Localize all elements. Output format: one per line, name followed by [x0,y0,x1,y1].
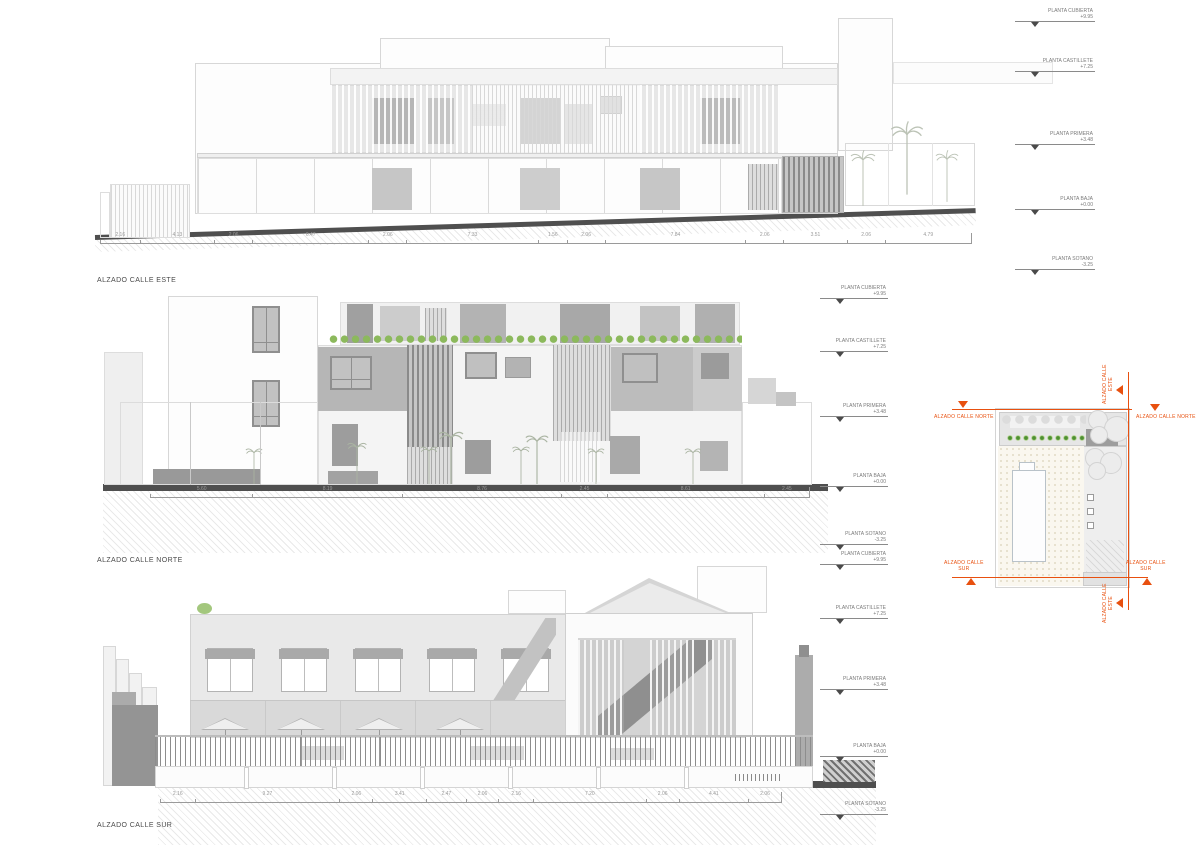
siteplan-label-south-left: ALZADO CALLE SUR [944,560,984,572]
palm-tree-icon [524,432,550,484]
level-triangle-icon [836,487,844,492]
dimension-segment: 2.16 [160,799,195,803]
siteplan-room-sq [1087,494,1094,501]
level-marker: PLANTA CUBIERTA+9.95 [820,285,888,304]
dimension-value: 2.16 [161,791,195,797]
level-line [820,298,888,299]
fence-pier [508,767,513,789]
facade-panel [465,440,491,474]
window-mullion [452,659,453,691]
dimension-value: 2.45 [562,486,606,492]
level-value: +9.95 [820,291,888,297]
facade-window [701,353,729,379]
facade-window [622,353,658,383]
dimension-segment: 2.06 [646,799,679,803]
dimension-value: 2.06 [848,232,885,238]
dimension-value: 7.20 [534,791,646,797]
dimension-segment: 6.47 [252,240,368,244]
dimension-segment: 2.06 [339,799,372,803]
dimension-segment: 2.45 [764,494,809,498]
south-window [281,648,327,692]
dimension-segment: 2.06 [567,240,605,244]
parasol-canopy-inner [279,719,323,729]
level-line [1015,71,1095,72]
level-line [820,618,888,619]
dimension-segment: 4.79 [885,240,971,244]
siteplan-label-north-right: ALZADO CALLE NORTE [1136,414,1196,420]
dimension-segment: 5.60 [150,494,252,498]
window-awning [353,649,403,659]
level-line [1015,144,1095,145]
level-line [820,416,888,417]
south-fence-base [155,766,813,788]
level-marker: PLANTA BAJA+0.00 [820,473,888,492]
palm-tree-icon [418,444,440,484]
section-arrow-icon [1116,598,1123,608]
dimension-segment: 2.06 [748,799,781,803]
level-triangle-icon [836,565,844,570]
level-value: +7.25 [820,611,888,617]
dimension-value: 2.45 [765,486,809,492]
level-marker: PLANTA PRIMERA+3.48 [1015,131,1095,150]
dimension-value: 2.06 [369,232,406,238]
louver-screen [748,164,778,210]
section-arrow-icon [1150,404,1160,411]
elevation-sheet: 2.164.132.066.472.067.331.562.067.842.06… [0,0,1200,848]
dimension-value: 4.41 [680,791,748,797]
level-line [820,351,888,352]
north-right-glass-fence [742,402,812,485]
dimension-value: 2.06 [568,232,605,238]
level-line [820,814,888,815]
siteplan-hedge-row [1006,434,1086,442]
louver-screen [640,85,780,153]
dimension-line: 2.164.132.066.472.067.331.562.067.842.06… [100,233,972,244]
level-triangle-icon [836,417,844,422]
level-triangle-icon [836,352,844,357]
roof-bush [197,603,212,614]
parasol-canopy-inner [438,719,482,729]
facade-window [465,352,497,379]
dimension-value: 2.06 [340,791,372,797]
facade-window [505,357,531,378]
level-value: +0.00 [820,749,888,755]
window-awning [205,649,255,659]
palm-tree-icon [438,428,464,484]
south-rear-volume [508,590,566,614]
dimension-segment: 7.20 [533,799,646,803]
palm-tree-icon [345,440,369,484]
fence-post [888,143,889,206]
level-value: -3.25 [1015,262,1095,268]
level-marker: PLANTA CASTILLETE+7.25 [820,338,888,357]
south-window [207,648,253,692]
elevation-title-south: ALZADO CALLE SUR [97,822,172,829]
dimension-value: 2.16 [101,232,140,238]
louver-screen [472,85,640,153]
label-line2: ESTE [1108,362,1114,406]
dimension-value: 8.19 [253,486,401,492]
palm-tree-icon [585,446,607,484]
fence-pier [596,767,601,789]
fence-pier [332,767,337,789]
tree-icon [1090,426,1108,444]
dimension-segment: 2.16 [498,799,533,803]
window-mullion [378,659,379,691]
level-value: -3.25 [820,537,888,543]
dimension-segment: 3.51 [783,240,847,244]
label-line2: SUR [944,566,984,572]
section-line-north [952,409,1132,410]
siteplan-label-east-bottom: ALZADO CALLE ESTE [1102,582,1114,624]
dimension-segment: 2.45 [561,494,606,498]
level-triangle-icon [1031,72,1039,77]
level-marker: PLANTA CUBIERTA+9.95 [1015,8,1095,27]
dimension-segment: 2.06 [466,799,499,803]
south-picket-fence [155,735,813,766]
tree-icon [1104,416,1130,442]
neighbor-window [252,306,280,353]
fence-pier [684,767,689,789]
level-marker: PLANTA BAJA+0.00 [1015,196,1095,215]
dimension-segment: 1.56 [538,240,567,244]
facade-panel [372,168,412,210]
level-value: +0.00 [820,479,888,485]
window-awning [279,649,329,659]
fence-post [190,402,191,485]
siteplan-tree-row [1000,412,1086,427]
label-line2: ESTE [1108,582,1114,624]
dimension-segment: 2.06 [745,240,783,244]
dimension-value: 2.06 [749,791,781,797]
dimension-value: 2.06 [467,791,499,797]
south-window [355,648,401,692]
east-ground-floor [197,158,782,214]
level-line [820,689,888,690]
east-entry-gate [782,156,844,213]
siteplan-label-south-right: ALZADO CALLE SUR [1126,560,1166,572]
siteplan-court-hatch [1086,540,1124,572]
level-marker: PLANTA BAJA+0.00 [820,743,888,762]
east-roof-fascia [330,68,838,85]
section-arrow-icon [1116,385,1123,395]
level-triangle-icon [1031,270,1039,275]
step-block [748,378,776,404]
elevation-title-north: ALZADO CALLE NORTE [97,557,183,564]
level-marker: PLANTA PRIMERA+3.48 [820,403,888,422]
parasol-canopy-inner [203,719,247,729]
east-upper-parapet-b [605,46,783,70]
level-value: +9.95 [1015,14,1095,20]
dimension-value: 2.06 [647,791,679,797]
dimension-value: 2.16 [499,791,533,797]
dimension-segment: 8.19 [252,494,401,498]
step-block [776,392,796,406]
dimension-segment: 8.61 [607,494,764,498]
dimension-segment: 7.33 [406,240,538,244]
facade-panel [640,168,680,210]
level-value: +3.48 [820,682,888,688]
palm-tree-icon [682,446,704,484]
south-pillar-cap [799,645,809,657]
tree-icon [1088,462,1106,480]
dimension-segment: 7.84 [605,240,746,244]
facade-window [330,356,372,390]
fence-pier [420,767,425,789]
level-value: +7.25 [820,344,888,350]
louver-screen [578,640,624,735]
dimension-segment: 2.06 [847,240,885,244]
level-line [1015,21,1095,22]
dimension-value: 4.79 [886,232,971,238]
level-line [820,544,888,545]
dimension-value: 8.76 [403,486,562,492]
level-marker: PLANTA SOTANO-3.25 [820,801,888,820]
parasol-canopy-inner [357,719,401,729]
facade-panel [610,436,640,474]
siteplan-pool-step [1019,462,1035,471]
dimension-value: 3.41 [373,791,426,797]
section-line-south [952,577,1148,578]
dimension-value: 2.47 [427,791,465,797]
level-value: +3.48 [820,409,888,415]
louver-screen [553,345,611,441]
east-white-tower [838,18,893,151]
level-line [1015,269,1095,270]
palm-tree-icon [935,148,959,204]
level-triangle-icon [836,299,844,304]
section-line-east [1128,372,1129,610]
louver-screen [706,640,736,735]
dimension-segment: 4.13 [140,240,215,244]
south-window [429,648,475,692]
louver-screen [650,640,694,735]
palm-tree-icon [890,112,924,204]
siteplan-pool [1012,470,1046,562]
level-value: +7.25 [1015,64,1095,70]
dimension-segment: 2.16 [100,240,140,244]
level-triangle-icon [1031,210,1039,215]
level-marker: PLANTA CUBIERTA+9.95 [820,551,888,570]
fence-pier [244,767,249,789]
level-line [820,486,888,487]
dimension-segment: 4.41 [679,799,748,803]
dimension-segment: 8.76 [402,494,562,498]
level-value: +9.95 [820,557,888,563]
dimension-value: 2.06 [215,232,252,238]
street-steps [735,774,781,781]
window-awning [427,649,477,659]
elevation-title-east: ALZADO CALLE ESTE [97,277,176,284]
siteplan-label-north-left: ALZADO CALLE NORTE [934,414,994,420]
level-triangle-icon [836,757,844,762]
level-triangle-icon [836,690,844,695]
north-ground-hatch [103,491,828,553]
dimension-value: 4.13 [141,232,215,238]
level-line [1015,209,1095,210]
dimension-segment: 9.27 [195,799,340,803]
dimension-value: 9.27 [196,791,340,797]
dimension-value: 6.47 [253,232,368,238]
siteplan-key: ALZADO CALLE NORTE ALZADO CALLE NORTE AL… [930,360,1185,625]
north-left-glass-fence [120,402,318,485]
dimension-line: 2.169.272.063.412.472.062.167.202.064.41… [160,792,782,803]
roof-garden-bushes [328,332,742,346]
window-mullion [304,659,305,691]
dimension-value: 8.61 [608,486,764,492]
facade-panel [520,168,560,210]
dimension-segment: 3.41 [372,799,426,803]
dimension-segment: 2.47 [426,799,465,803]
south-step-dark-wall [112,705,158,786]
level-value: +3.48 [1015,137,1095,143]
east-upper-parapet-a [380,38,610,70]
dimension-line: 5.608.198.762.458.612.45 [150,487,810,498]
level-triangle-icon [836,545,844,550]
level-triangle-icon [836,619,844,624]
level-marker: PLANTA SOTANO-3.25 [1015,256,1095,275]
siteplan-label-east-top: ALZADO CALLE ESTE [1102,362,1114,406]
fence-post [932,143,933,206]
fence-post [260,402,261,485]
dimension-segment: 2.06 [214,240,252,244]
section-arrow-icon [966,578,976,585]
east-left-fence [110,184,190,238]
level-triangle-icon [836,815,844,820]
palm-tree-icon [850,150,876,206]
dimension-value: 7.33 [407,232,538,238]
label-line2: SUR [1126,566,1166,572]
dimension-value: 1.56 [539,232,567,238]
dimension-value: 7.84 [606,232,746,238]
siteplan-room-sq [1087,522,1094,529]
level-value: -3.25 [820,807,888,813]
level-line [820,756,888,757]
level-triangle-icon [1031,145,1039,150]
level-marker: PLANTA SOTANO-3.25 [820,531,888,550]
dimension-value: 2.06 [746,232,783,238]
level-line [820,564,888,565]
louver-screen [330,85,472,153]
window-mullion [230,659,231,691]
level-marker: PLANTA CASTILLETE+7.25 [820,605,888,624]
siteplan-room-sq [1087,508,1094,515]
level-value: +0.00 [1015,202,1095,208]
dimension-segment: 2.06 [368,240,406,244]
facade-panel [700,441,728,471]
dimension-value: 5.60 [151,486,252,492]
dimension-value: 3.51 [784,232,847,238]
section-arrow-icon [958,401,968,408]
level-marker: PLANTA CASTILLETE+7.25 [1015,58,1095,77]
level-marker: PLANTA PRIMERA+3.48 [820,676,888,695]
section-arrow-icon [1142,578,1152,585]
south-dark-hatch-block [823,760,875,782]
level-triangle-icon [1031,22,1039,27]
